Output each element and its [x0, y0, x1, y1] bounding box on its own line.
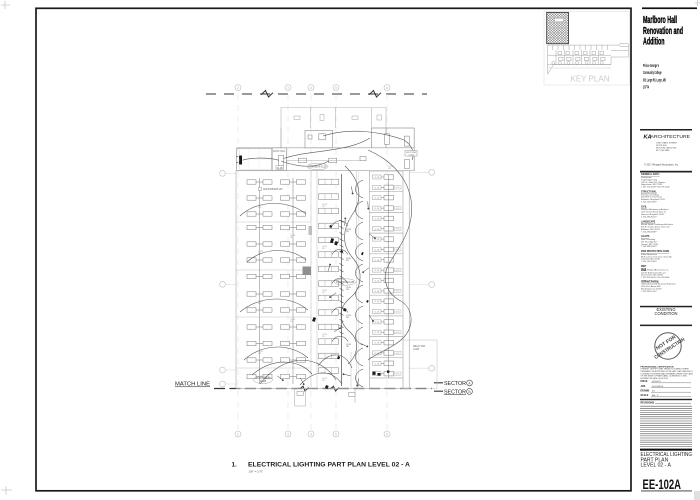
svg-text:6F15: 6F15 — [396, 270, 400, 272]
svg-text:CL2B: CL2B — [374, 343, 380, 345]
svg-text:6: 6 — [386, 432, 388, 436]
svg-text:CL2B: CL2B — [374, 291, 380, 293]
svg-text:2F1: 2F1 — [346, 231, 349, 233]
svg-text:4: 4 — [310, 86, 312, 90]
svg-text:SCALE: SCALE — [641, 394, 649, 397]
svg-text:T 301.353.0600 F 301.353.060: T 301.353.0600 F 301.353.0601 — [641, 277, 670, 279]
svg-text:Marlboro Hall: Marlboro Hall — [643, 15, 677, 26]
svg-text:1.: 1. — [232, 462, 238, 469]
svg-text:T 410.740.2233 F: T 410.740.2233 F — [641, 261, 658, 263]
svg-text:AUX/DISPLAY: AUX/DISPLAY — [263, 187, 283, 191]
svg-text:FIRE PROTECTION CODE: FIRE PROTECTION CODE — [641, 251, 670, 253]
svg-text:SECTOR: SECTOR — [444, 389, 466, 395]
svg-text:LEVEL 02 - A: LEVEL 02 - A — [641, 463, 672, 469]
svg-text:2F1: 2F1 — [322, 336, 325, 338]
svg-text:CL2B: CL2B — [374, 229, 380, 231]
svg-text:T 301.791.5644 F 301.791.564: T 301.791.5644 F 301.791.5645 — [641, 187, 670, 189]
svg-text:301 Largo Rd, Largo, MD: 301 Largo Rd, Largo, MD — [643, 77, 666, 82]
svg-text:2F1: 2F1 — [346, 346, 349, 348]
svg-text:2F1: 2F1 — [322, 248, 325, 250]
svg-text:MATCH LINE: MATCH LINE — [175, 382, 210, 388]
svg-text:2F1: 2F1 — [322, 292, 325, 294]
svg-text:2F1: 2F1 — [290, 321, 293, 323]
svg-text:ISSUE: ISSUE — [641, 381, 648, 383]
svg-text:CL2B: CL2B — [374, 270, 380, 272]
svg-text:6F15: 6F15 — [396, 373, 400, 375]
svg-text:AV/Rauf Testing: AV/Rauf Testing — [641, 280, 659, 283]
svg-text:ARCHITECTURE: ARCHITECTURE — [651, 134, 691, 139]
svg-text:CL2B: CL2B — [374, 249, 380, 251]
svg-text:4: 4 — [310, 432, 312, 436]
svg-text:CL2B: CL2B — [374, 177, 380, 179]
svg-text:2F1: 2F1 — [322, 380, 325, 382]
svg-text:3: 3 — [287, 432, 289, 436]
svg-text:6F15: 6F15 — [396, 229, 400, 231]
svg-text:20774: 20774 — [643, 85, 649, 90]
svg-text:Prince George's: Prince George's — [643, 63, 659, 68]
svg-text:REVISIONS: REVISIONS — [641, 402, 655, 405]
svg-text:1/8" = 1'-0": 1/8" = 1'-0" — [249, 470, 264, 474]
svg-text:CORRIDOR CL2B: CORRIDOR CL2B — [336, 281, 354, 284]
svg-text:2F1: 2F1 — [258, 253, 261, 255]
svg-text:2F1: 2F1 — [346, 260, 349, 262]
svg-text:2F1: 2F1 — [258, 353, 261, 355]
svg-text:JOB: JOB — [641, 386, 646, 388]
svg-text:CL2B: CL2B — [374, 281, 380, 283]
svg-text:T 443.386.2653 F: T 443.386.2653 F — [641, 246, 658, 248]
svg-text:CIVIL: CIVIL — [641, 206, 647, 208]
svg-text:SECTOR: SECTOR — [444, 381, 466, 387]
svg-text:CL2B: CL2B — [408, 154, 414, 156]
svg-text:CL2B: CL2B — [374, 187, 380, 189]
svg-text:6F15: 6F15 — [396, 311, 400, 313]
svg-text:CL2B: CL2B — [374, 218, 380, 220]
svg-text:6F15: 6F15 — [396, 332, 400, 334]
svg-text:CL2B: CL2B — [260, 380, 267, 383]
svg-text:AS - 1': AS - 1' — [652, 394, 659, 397]
svg-text:Community College: Community College — [643, 70, 662, 75]
svg-text:6F15: 6F15 — [396, 291, 400, 293]
svg-text:CONDITION: CONDITION — [655, 311, 678, 316]
svg-text:CL2B: CL2B — [277, 168, 283, 170]
svg-text:EXPIRATION DATE: 06-18-2019.: EXPIRATION DATE: 06-18-2019. — [641, 377, 669, 380]
svg-text:2F1: 2F1 — [322, 206, 325, 208]
svg-text:2: 2 — [237, 86, 239, 90]
svg-text:2F1: 2F1 — [258, 303, 261, 305]
svg-text:5: 5 — [335, 432, 337, 436]
svg-text:2F1: 2F1 — [346, 289, 349, 291]
svg-text:CL2B: CL2B — [413, 348, 419, 351]
svg-text:2F1: 2F1 — [290, 237, 293, 239]
svg-text:T 410.235.9282 F: T 410.235.9282 F — [641, 202, 658, 204]
svg-text:ELECTRICAL LIGHTING PART PLAN: ELECTRICAL LIGHTING PART PLAN LEVEL 02 -… — [248, 462, 410, 469]
svg-text:Addition: Addition — [643, 37, 665, 48]
svg-text:T 410.280.6586 F: T 410.280.6586 F — [641, 231, 658, 233]
svg-text:5: 5 — [335, 86, 337, 90]
svg-text:CL2B: CL2B — [374, 322, 380, 324]
svg-text:Renovation and: Renovation and — [643, 26, 683, 37]
svg-text:CL2B: CL2B — [374, 208, 380, 210]
svg-text:T 202.333.5570 F: T 202.333.5570 F — [641, 291, 658, 293]
svg-text:KEY PLAN: KEY PLAN — [571, 74, 610, 84]
svg-text:CL2B: CL2B — [374, 332, 380, 334]
svg-text:6F15: 6F15 — [396, 353, 400, 355]
svg-text:CL2B: CL2B — [374, 363, 380, 365]
svg-text:CL2B: CL2B — [374, 260, 380, 262]
svg-text:T 410.280.3501 F: T 410.280.3501 F — [641, 216, 658, 218]
svg-text:617.330.5885: 617.330.5885 — [656, 150, 670, 152]
svg-text:2F1: 2F1 — [346, 317, 349, 319]
svg-text:CL2B: CL2B — [374, 312, 380, 314]
svg-text:6F15: 6F15 — [396, 208, 400, 210]
svg-text:EE-102A: EE-102A — [643, 477, 682, 492]
svg-text:CORRIDOR CL2B: CORRIDOR CL2B — [309, 166, 327, 169]
svg-text:DRAWN: DRAWN — [641, 389, 650, 392]
svg-text:CL2B: CL2B — [374, 301, 380, 303]
svg-text:6F15: 6F15 — [396, 187, 400, 189]
svg-text:STRUCTURAL: STRUCTURAL — [641, 191, 657, 194]
svg-text:2F1: 2F1 — [388, 168, 391, 170]
svg-text:LANDSCAPE: LANDSCAPE — [641, 220, 656, 223]
svg-text:LIGHTS: LIGHTS — [641, 236, 650, 238]
svg-text:© 2017 Wingard Associates, Inc: © 2017 Wingard Associates, Inc. — [644, 164, 679, 167]
svg-text:2: 2 — [237, 432, 239, 436]
svg-text:6: 6 — [386, 86, 388, 90]
svg-text:CL2B: CL2B — [374, 198, 380, 200]
svg-text:CL2B: CL2B — [374, 239, 380, 241]
svg-text:3: 3 — [287, 86, 289, 90]
svg-text:GENERAL DATA:: GENERAL DATA: — [641, 173, 660, 176]
svg-text:Wingard Associates, Inc.: Wingard Associates, Inc. — [647, 269, 669, 272]
svg-text:2F1: 2F1 — [258, 207, 261, 209]
svg-text:ECHO HALL: ECHO HALL — [273, 150, 286, 153]
